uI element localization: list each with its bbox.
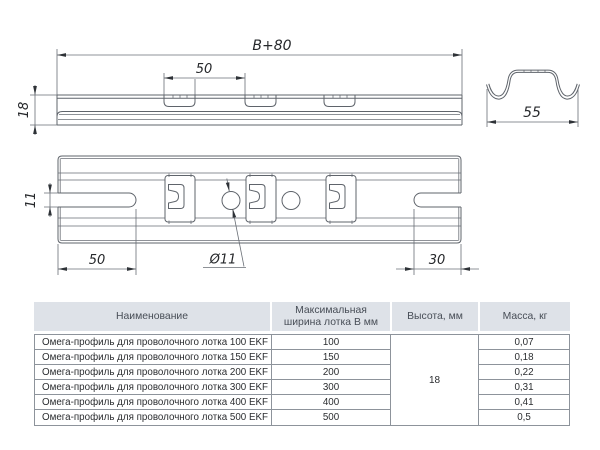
mass-cell: 0,07 [479,335,569,350]
dim-label-slot-length: 50 [89,253,106,268]
mount-tab [165,174,195,224]
side-view-drawing: B+80 50 18 [17,38,462,135]
spec-table: Наименование Максимальная ширина лотка В… [34,302,570,426]
mass-cell: 0,41 [479,395,569,410]
plan-view-drawing: 11 50 30 Ø11 [24,156,479,275]
technical-drawing: B+80 50 18 55 [0,0,600,300]
width-cell: 150 [272,350,391,365]
technical-drawing-page: B+80 50 18 55 [0,0,600,450]
header-cell-height: Высота, мм [392,302,480,331]
mount-hole [282,192,300,210]
header-cell-max-width: Максимальная ширина лотка В мм [272,302,392,331]
product-name-cell: Омега-профиль для проволочного лотка 150… [35,350,272,365]
width-cell: 300 [272,380,391,395]
width-cell: 400 [272,395,391,410]
product-name-cell: Омега-профиль для проволочного лотка 100… [35,335,272,350]
mount-tab [326,174,356,224]
header-cell-name: Наименование [34,302,272,331]
cross-section-drawing: 55 [487,70,580,127]
mass-cell: 0,31 [479,380,569,395]
spec-table-body: Омега-профиль для проволочного лотка 100… [34,334,570,426]
product-name-cell: Омега-профиль для проволочного лотка 200… [35,365,272,380]
height-merged-cell: 18 [391,335,479,425]
product-name-cell: Омега-профиль для проволочного лотка 500… [35,410,272,425]
dim-label-tab-spacing: 50 [196,62,213,77]
mount-tab [246,174,276,224]
product-name-cell: Омега-профиль для проволочного лотка 400… [35,395,272,410]
width-cell: 100 [272,335,391,350]
width-cell: 500 [272,410,391,425]
mass-cell: 0,18 [479,350,569,365]
dim-label-side-height: 18 [17,102,32,119]
dim-label-overall-width: B+80 [252,38,291,54]
dim-label-end-offset: 30 [429,253,446,268]
mount-hole [222,192,240,210]
product-name-cell: Омега-профиль для проволочного лотка 300… [35,380,272,395]
dim-label-profile-width: 55 [523,105,541,121]
header-cell-mass: Масса, кг [480,302,570,331]
mass-cell: 0,22 [479,365,569,380]
dim-label-hole-diameter: Ø11 [209,253,237,268]
width-cell: 200 [272,365,391,380]
dim-label-slot-width: 11 [24,192,39,209]
spec-table-header: Наименование Максимальная ширина лотка В… [34,302,570,331]
mass-cell: 0,5 [479,410,569,425]
